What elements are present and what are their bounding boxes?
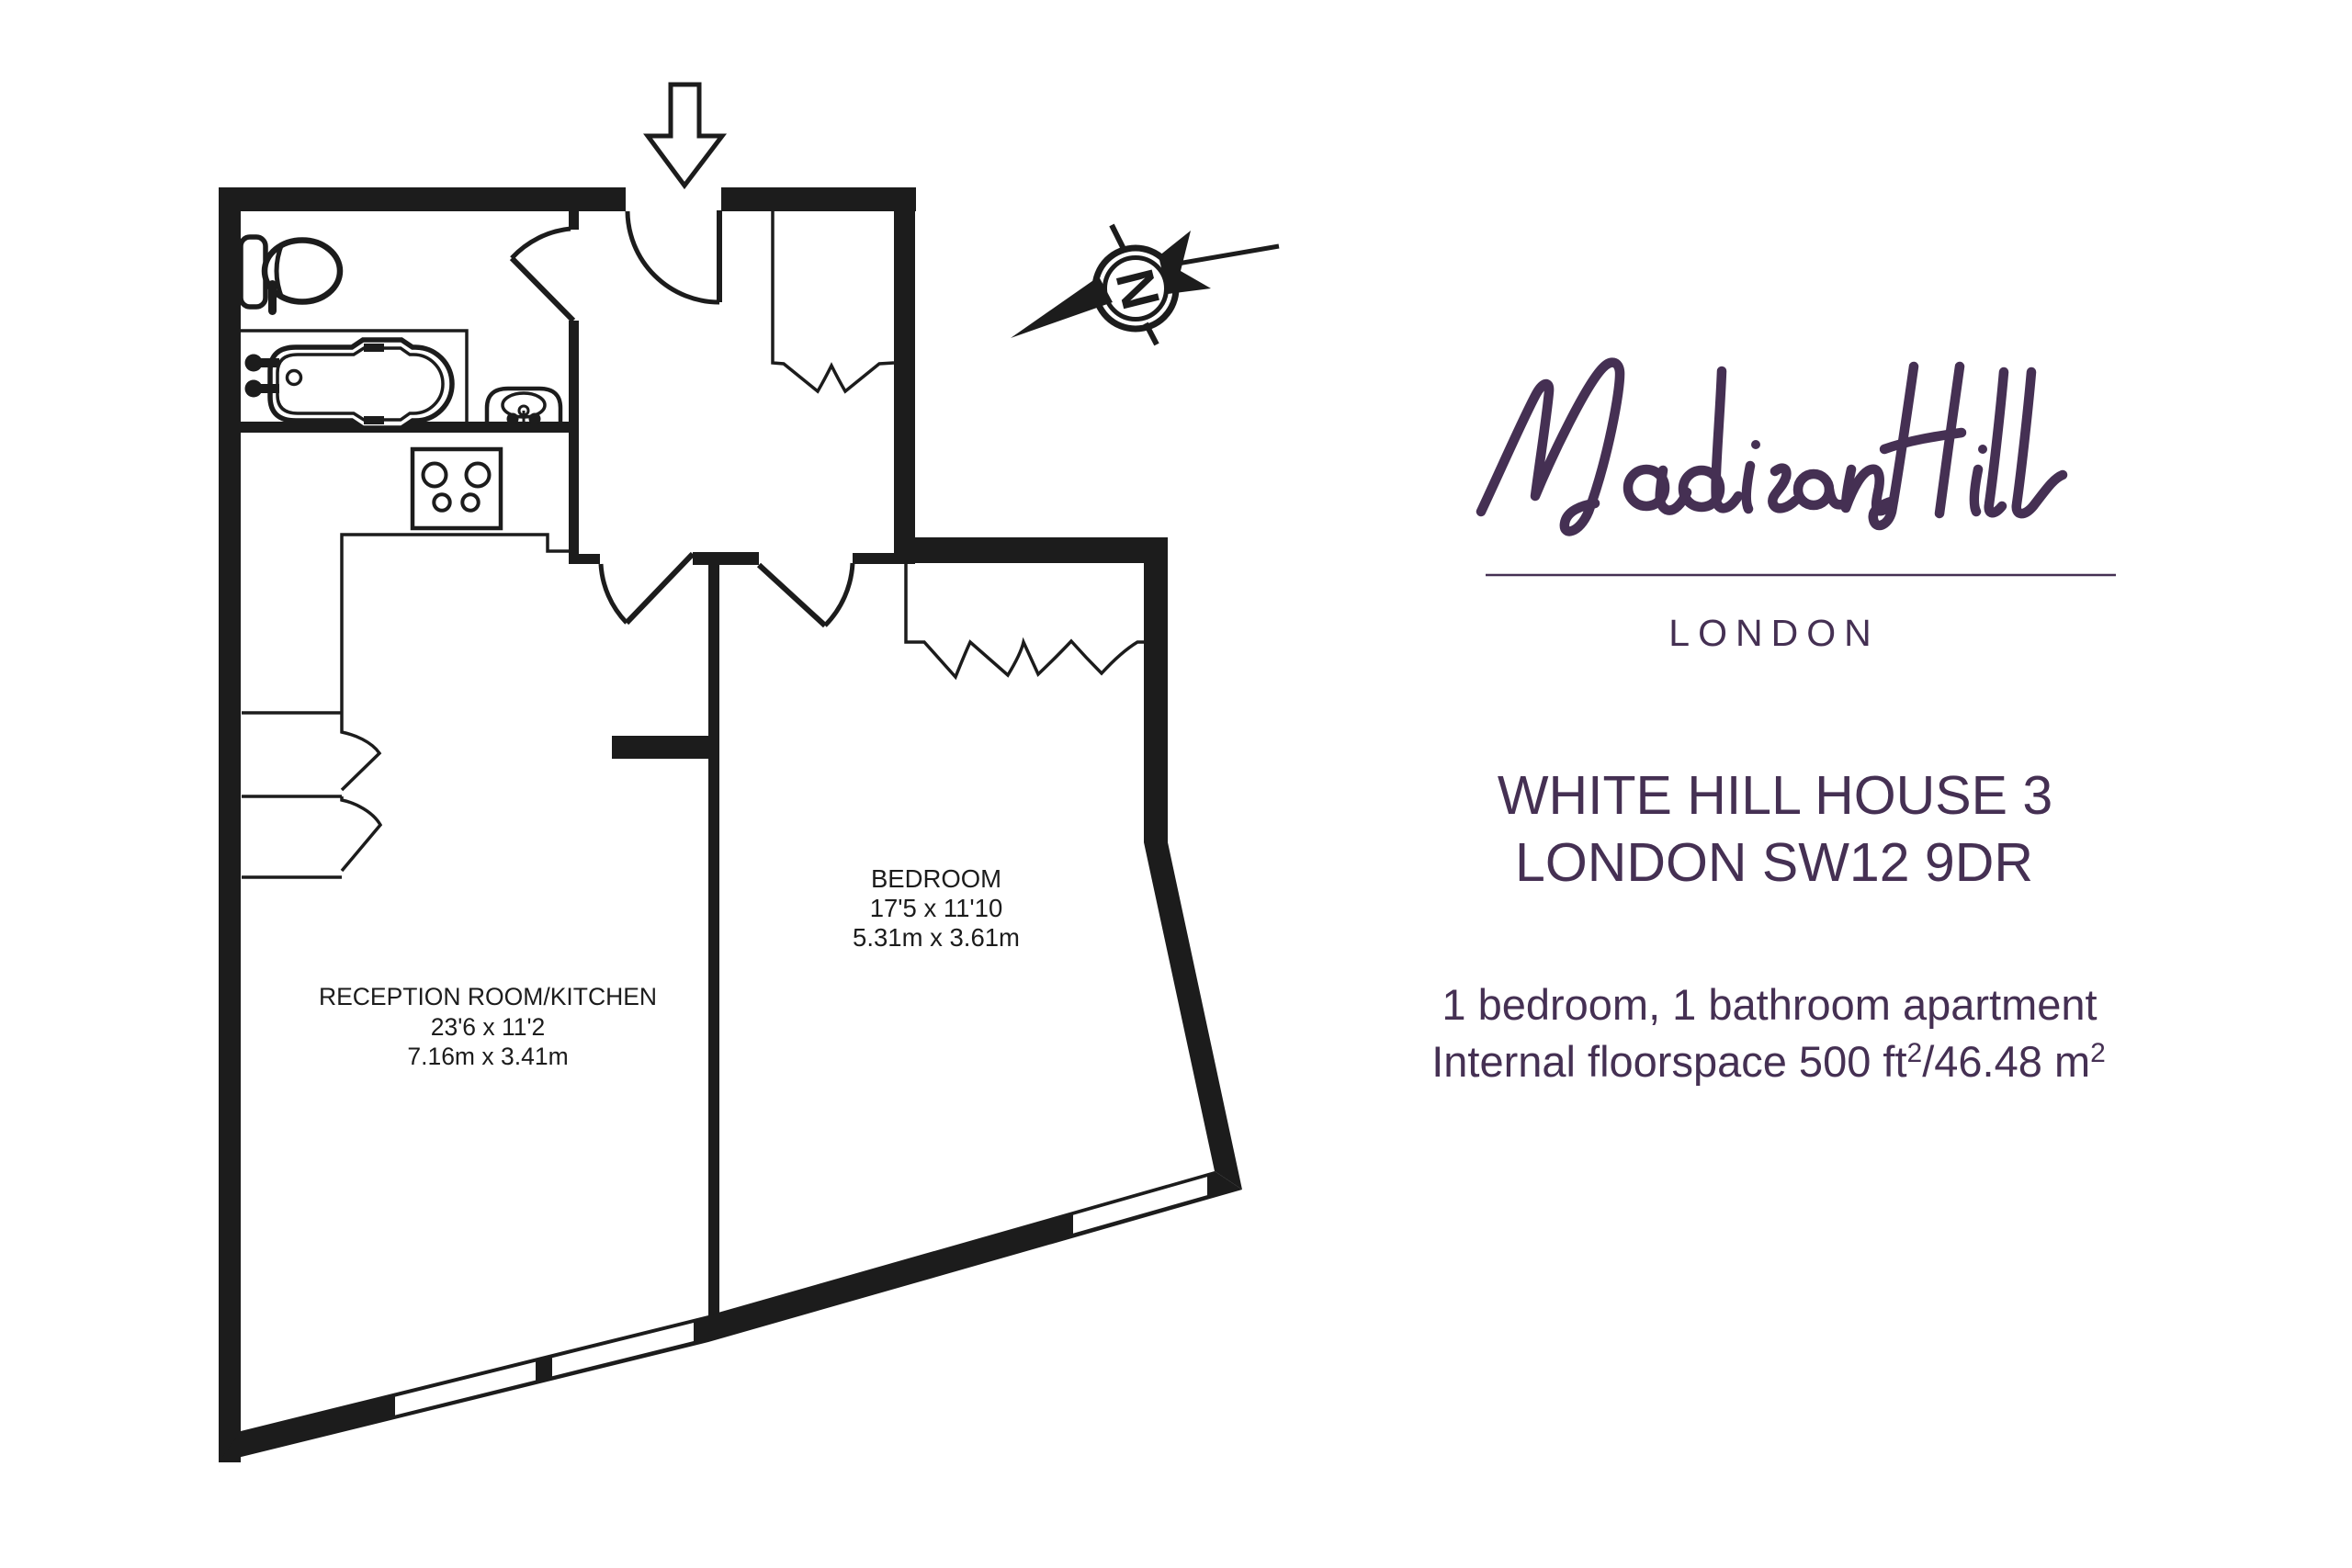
svg-text:LONDON: LONDON: [1668, 612, 1879, 654]
svg-text:WHITE HILL HOUSE 3: WHITE HILL HOUSE 3: [1498, 765, 2052, 826]
svg-text:LONDON SW12 9DR: LONDON SW12 9DR: [1515, 832, 2033, 893]
svg-text:7.16m x 3.41m: 7.16m x 3.41m: [407, 1043, 568, 1070]
svg-text:RECEPTION ROOM/KITCHEN: RECEPTION ROOM/KITCHEN: [319, 983, 657, 1010]
svg-text:BEDROOM: BEDROOM: [871, 864, 1001, 893]
svg-text:5.31m x 3.61m: 5.31m x 3.61m: [853, 923, 1020, 952]
svg-text:Internal floorspace 500 ft2/46: Internal floorspace 500 ft2/46.48 m2: [1431, 1037, 2106, 1086]
svg-text:1 bedroom, 1 bathroom apartmen: 1 bedroom, 1 bathroom apartment: [1442, 980, 2097, 1029]
svg-text:17'5 x 11'10: 17'5 x 11'10: [870, 894, 1003, 922]
svg-text:23'6 x 11'2: 23'6 x 11'2: [431, 1013, 546, 1041]
